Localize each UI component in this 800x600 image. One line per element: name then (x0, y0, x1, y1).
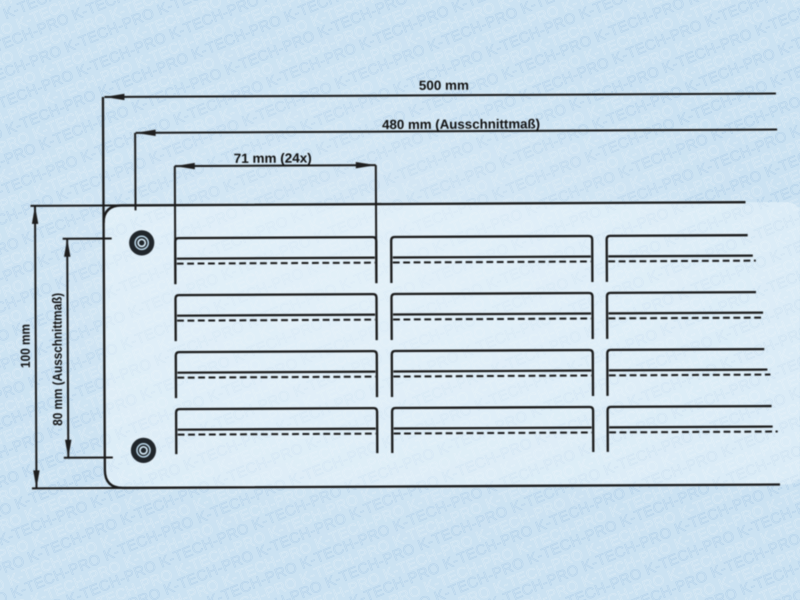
svg-text:100 mm: 100 mm (18, 324, 33, 368)
svg-text:480 mm (Ausschnittmaß): 480 mm (Ausschnittmaß) (382, 116, 540, 132)
svg-text:71 mm (24x): 71 mm (24x) (234, 150, 312, 165)
svg-text:500 mm: 500 mm (419, 78, 469, 93)
svg-text:80 mm (Ausschnittmaß): 80 mm (Ausschnittmaß) (49, 293, 65, 426)
